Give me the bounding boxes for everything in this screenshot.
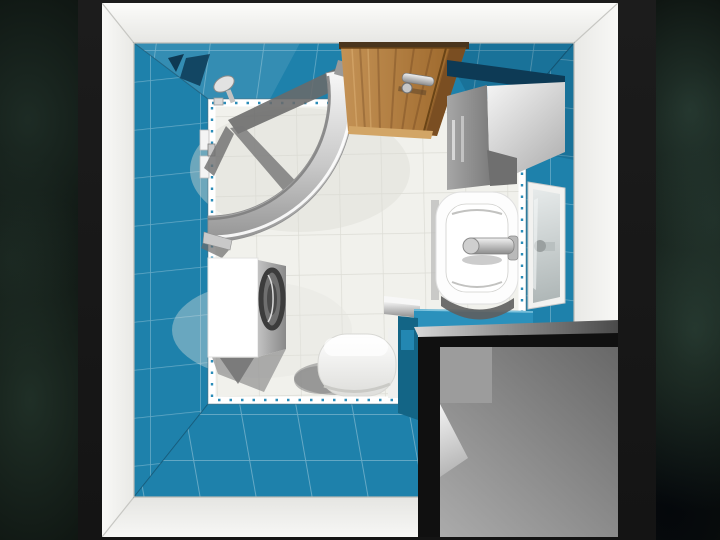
faucet-shadow (462, 255, 502, 265)
cabinet-door-gap-1 (452, 120, 455, 160)
vanity-counter-block (384, 296, 618, 538)
washer-top-face (208, 258, 258, 357)
toilet-lid-highlight (324, 338, 388, 356)
shower-holder (214, 98, 223, 105)
outer-wall-left (102, 3, 134, 537)
faucet-tip (463, 238, 479, 254)
washbasin (431, 192, 518, 320)
panel-light-patch (440, 347, 492, 403)
bathroom-render-screenshot (0, 0, 720, 540)
handle-rosette (402, 83, 412, 93)
wall-mirror (528, 182, 565, 309)
bathroom-3d-render (0, 0, 720, 540)
outer-wall-top (102, 3, 618, 43)
counter-side-tile (401, 330, 414, 350)
cabinet-door-gap-2 (461, 116, 464, 162)
